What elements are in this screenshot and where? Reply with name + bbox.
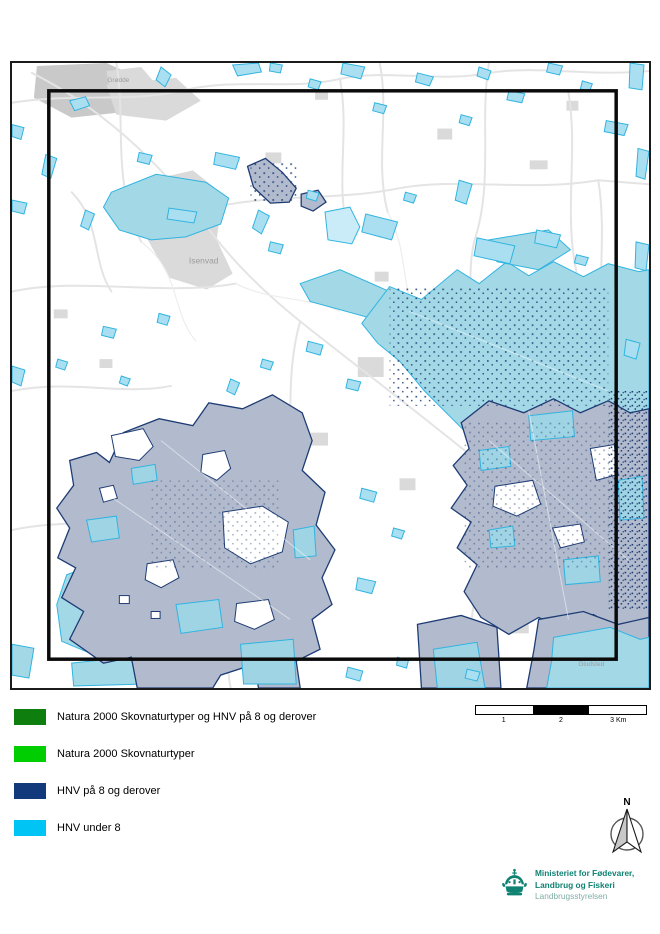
scale-segment-3 <box>589 706 646 714</box>
north-arrow: N <box>599 798 655 857</box>
map-label-groedde: Grødde <box>107 77 129 84</box>
legend-item-natura: Natura 2000 Skovnaturtyper <box>14 746 195 762</box>
legend-swatch-hnv-under8 <box>14 820 46 836</box>
ministry-logo-text: Ministeriet for Fødevarer, Landbrug og F… <box>535 868 634 903</box>
legend-swatch-natura-hnv8 <box>14 709 46 725</box>
legend-item-natura-hnv8: Natura 2000 Skovnaturtyper og HNV på 8 o… <box>14 709 316 725</box>
scale-tick-3: 3 Km <box>590 717 647 724</box>
legend-label-natura-hnv8: Natura 2000 Skovnaturtyper og HNV på 8 o… <box>57 711 316 723</box>
legend-swatch-hnv8 <box>14 783 46 799</box>
scale-tick-2: 2 <box>532 717 589 724</box>
ministry-name-line2: Landbrug og Fiskeri <box>535 880 634 892</box>
scale-segment-2 <box>533 706 590 714</box>
map-canvas: Isenvad Grødde Gludsted <box>10 61 651 690</box>
scale-bar: 1 2 3 Km <box>475 705 647 724</box>
legend-swatch-natura <box>14 746 46 762</box>
speckle-layer <box>151 162 648 609</box>
ministry-name-line1: Ministeriet for Fødevarer, <box>535 868 634 880</box>
crown-icon <box>501 868 528 898</box>
legend-item-hnv8: HNV på 8 og derover <box>14 783 160 799</box>
compass-icon <box>599 807 655 857</box>
scale-tick-1: 1 <box>475 717 532 724</box>
legend-label-hnv-under8: HNV under 8 <box>57 822 121 834</box>
legend-label-natura: Natura 2000 Skovnaturtyper <box>57 748 195 760</box>
ministry-logo: Ministeriet for Fødevarer, Landbrug og F… <box>501 868 634 903</box>
map-label-isenvad: Isenvad <box>189 256 219 266</box>
scale-segment-1 <box>476 706 533 714</box>
map-art: Isenvad Grødde Gludsted <box>12 63 649 688</box>
legend-label-hnv8: HNV på 8 og derover <box>57 785 160 797</box>
map-label-gludsted: Gludsted <box>578 661 604 668</box>
scale-bar-labels: 1 2 3 Km <box>475 717 647 724</box>
scale-bar-segments <box>475 705 647 715</box>
map-sheet: { "colors": { "map_gray": "#DADADA", "ma… <box>0 0 660 934</box>
legend-item-hnv-under8: HNV under 8 <box>14 820 121 836</box>
agency-name: Landbrugsstyrelsen <box>535 891 634 903</box>
